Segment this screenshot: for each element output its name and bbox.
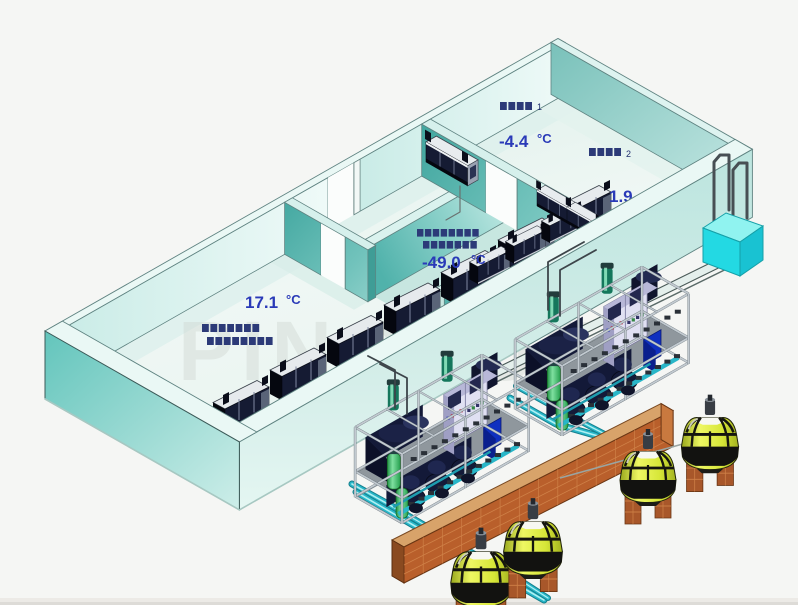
svg-text:-49.0: -49.0 (422, 253, 461, 272)
svg-text:-4.4: -4.4 (499, 132, 529, 151)
svg-text:1: 1 (537, 102, 542, 112)
svg-text:°C: °C (471, 252, 486, 267)
svg-text:2: 2 (626, 149, 631, 159)
svg-text:°C: °C (286, 292, 301, 307)
svg-text:°C: °C (537, 131, 552, 146)
svg-text:17.1: 17.1 (245, 293, 278, 312)
